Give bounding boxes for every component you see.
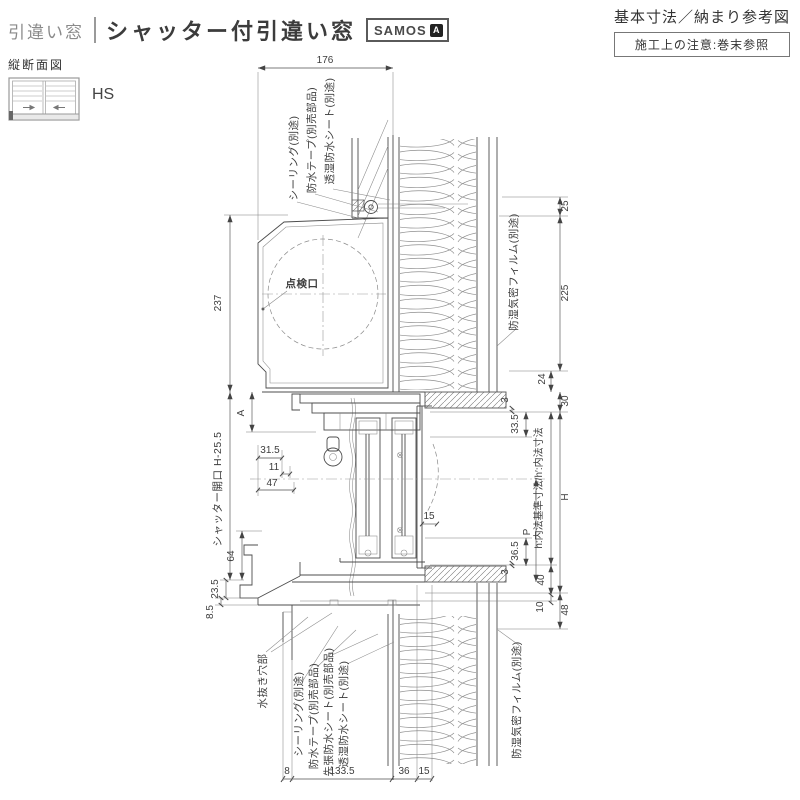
dim-15-mid: 15 — [423, 511, 435, 522]
dim-47: 47 — [266, 478, 278, 489]
dim-3-bottom: 3 — [500, 569, 511, 575]
head-frame — [262, 392, 425, 430]
dim-24: 24 — [537, 373, 548, 385]
dim-3-top: 3 — [500, 397, 511, 403]
dim-48: 48 — [560, 604, 571, 616]
label-film-top: 防湿気密フィルム(別途) — [507, 213, 520, 331]
insulation-lower — [400, 616, 476, 764]
dim-H: H — [560, 493, 571, 500]
annotations: シーリング(別途) 防水テープ(別売部品) 透湿防水シート(別途) 防湿気密フィ… — [256, 78, 523, 777]
dim-10: 10 — [535, 601, 546, 613]
label-inspection-port: 点検口 — [286, 277, 319, 290]
dim-A: A — [236, 409, 247, 416]
inner-sash — [392, 418, 416, 558]
label-drain-hole: 水抜き穴部 — [256, 654, 269, 709]
label-sealing-top: シーリング(別途) — [287, 116, 300, 201]
dim-40: 40 — [536, 574, 547, 586]
label-tape-bottom: 防水テープ(別売部品) — [307, 663, 320, 769]
dim-8: 8 — [284, 766, 290, 777]
dim-237: 237 — [213, 294, 224, 311]
insulation-upper — [400, 139, 476, 390]
label-tape-top: 防水テープ(別売部品) — [305, 87, 318, 193]
handle-arc — [427, 444, 438, 512]
label-shutter-opening: シャッター開口 H-25.5 — [212, 432, 224, 547]
dim-P: P — [522, 528, 533, 535]
dim-64: 64 — [226, 550, 237, 562]
dim-25: 25 — [560, 200, 571, 212]
label-sheet-bottom: 透湿防水シート(別途) — [337, 661, 350, 768]
dim-23-5: 23.5 — [210, 579, 221, 599]
sill-frame — [240, 545, 425, 660]
sill-block — [425, 566, 506, 582]
label-sheet-top: 透湿防水シート(別途) — [323, 78, 336, 185]
dim-225: 225 — [560, 284, 571, 301]
leader-lines — [262, 189, 520, 682]
dim-8-5: 8.5 — [205, 605, 216, 619]
dim-30: 30 — [560, 395, 571, 407]
label-film-bottom: 防湿気密フィルム(別途) — [510, 641, 523, 759]
lower-wall — [388, 583, 497, 780]
label-naiho: h:内法基準寸法/h′:内法寸法 — [532, 427, 545, 548]
upper-wall — [352, 120, 497, 392]
lintel-block — [425, 392, 506, 408]
dim-11: 11 — [269, 462, 280, 473]
label-sealing-bottom: シーリング(別途) — [292, 672, 305, 757]
dim-36: 36 — [398, 766, 410, 777]
dim-33-5: 33.5 — [510, 414, 521, 434]
dim-31-5: 31.5 — [260, 445, 280, 456]
dim-176: 176 — [317, 55, 334, 66]
vertical-section-drawing: 176 237 シャッター開口 H-25.5 A 31.5 11 47 — [0, 0, 800, 800]
outer-sash — [356, 418, 380, 558]
label-pre-sheet-bottom: 先張防水シート(別売部品) — [322, 648, 335, 777]
dim-15-bottom: 15 — [418, 766, 430, 777]
catalog-page: 引違い窓 シャッター付引違い窓 SAMOS A 基本寸法／納まり参考図 施工上の… — [0, 0, 800, 800]
dim-36-5: 36.5 — [510, 541, 521, 561]
